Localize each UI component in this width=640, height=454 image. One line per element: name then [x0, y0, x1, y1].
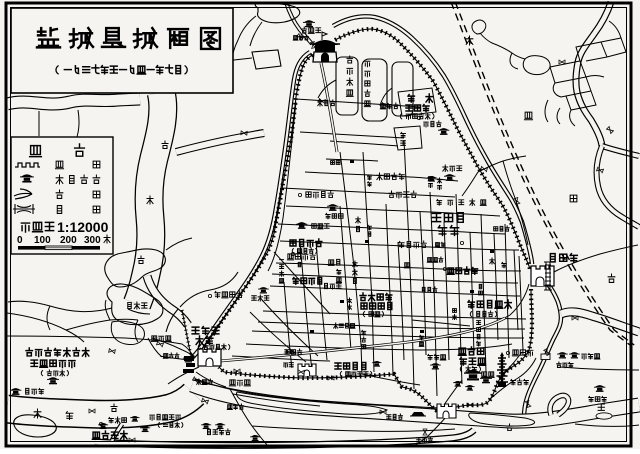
svg-text:1:12000: 1:12000 [57, 219, 109, 235]
svg-text:0: 0 [17, 235, 23, 246]
svg-text:200: 200 [60, 235, 77, 246]
svg-text:100: 100 [34, 235, 51, 246]
svg-text:300: 300 [84, 235, 101, 246]
